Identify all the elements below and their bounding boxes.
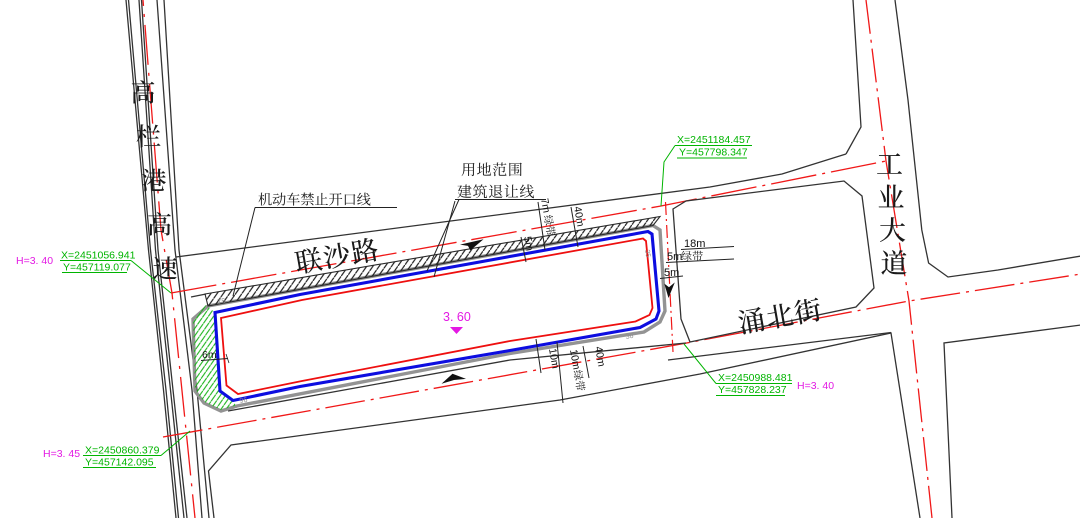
svg-text:5m: 5m: [667, 251, 682, 263]
svg-text:35: 35: [643, 249, 651, 258]
svg-text:3. 60: 3. 60: [443, 310, 471, 324]
svg-text:X=2450860.379: X=2450860.379: [85, 445, 160, 457]
svg-text:7m: 7m: [538, 197, 552, 214]
svg-text:Y=457798.347: Y=457798.347: [679, 147, 748, 159]
svg-text:36: 36: [625, 333, 634, 341]
svg-text:H=3. 45: H=3. 45: [43, 448, 80, 460]
svg-text:Y=457142.095: Y=457142.095: [85, 457, 154, 469]
svg-text:X=2451184.457: X=2451184.457: [677, 134, 751, 146]
svg-text:75: 75: [217, 298, 226, 306]
svg-text:X=2450988.481: X=2450988.481: [718, 372, 793, 384]
svg-text:H=3. 40: H=3. 40: [797, 380, 834, 392]
svg-text:Y=457828.237: Y=457828.237: [718, 384, 787, 396]
svg-text:Y=457119.077: Y=457119.077: [63, 262, 131, 274]
svg-text:H=3. 40: H=3. 40: [16, 255, 53, 267]
svg-text:96: 96: [239, 397, 248, 405]
svg-text:5m: 5m: [521, 235, 535, 252]
svg-text:X=2451056.941: X=2451056.941: [61, 250, 136, 262]
